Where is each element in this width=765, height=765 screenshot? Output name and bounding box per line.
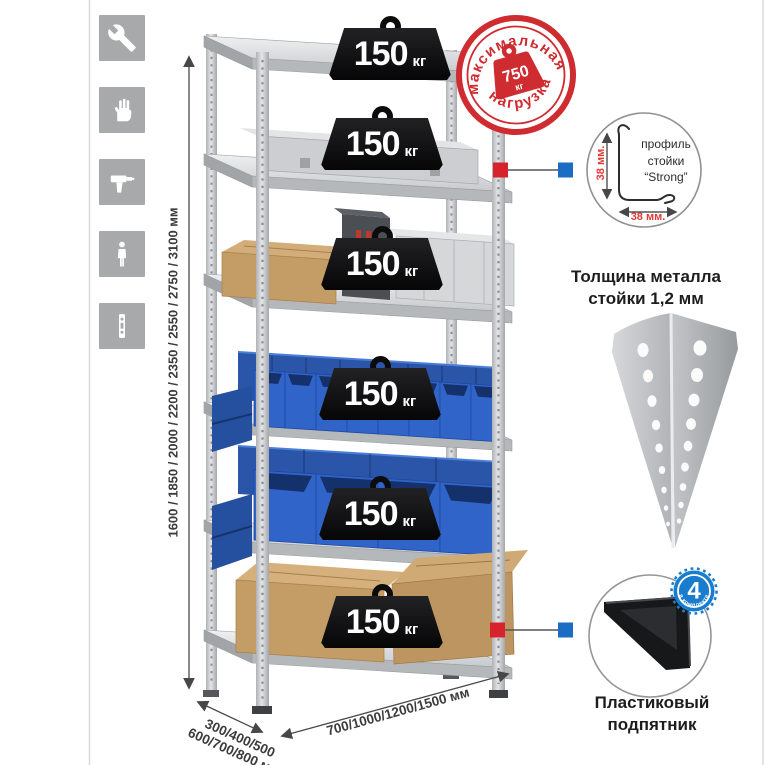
height-dimension-label: 1600 / 1850 / 2000 / 2200 / 2350 / 2550 … — [166, 53, 181, 693]
red-marker — [493, 163, 508, 178]
red-marker — [490, 623, 505, 638]
profile-dim-vertical: 38 мм. — [595, 133, 607, 193]
shelf-load-weight: 150кг — [318, 476, 442, 540]
shelf-load-weight: 150кг — [320, 584, 444, 648]
max-load-stamp: максимальная нагрузка 750 кг — [445, 4, 586, 145]
shelf-load-unit: кг — [404, 144, 418, 159]
qty-badge: 4 в комплекте — [672, 569, 717, 614]
caption-line2: стойки 1,2 мм — [546, 288, 746, 310]
connector-profile — [493, 163, 573, 178]
shelf-load-weight: 150кг — [328, 16, 452, 80]
shelf-load-value: 150 — [346, 605, 400, 639]
shelf-load-unit: кг — [402, 394, 416, 409]
shelf-load-value: 150 — [346, 127, 400, 161]
profile-label-line2: стойки — [630, 153, 702, 170]
shelf-load-unit: кг — [404, 264, 418, 279]
shelf-load-value: 150 — [346, 247, 400, 281]
caption-line2: подпятник — [552, 714, 752, 736]
shelf-load-weight: 150кг — [318, 356, 442, 420]
badge-value: 4 — [687, 578, 701, 605]
profile-label-line3: “Strong” — [630, 169, 702, 186]
plastic-foot-caption: Пластиковый подпятник — [552, 692, 752, 736]
shelf-load-unit: кг — [402, 514, 416, 529]
shelf-load-value: 150 — [354, 37, 408, 71]
shelf-load-value: 150 — [344, 377, 398, 411]
blue-marker — [558, 163, 573, 178]
metal-thickness-caption: Толщина металла стойки 1,2 мм — [546, 266, 746, 310]
profile-label-line1: профиль — [630, 136, 702, 153]
shelf-load-weight: 150кг — [320, 226, 444, 290]
caption-line1: Толщина металла — [546, 266, 746, 288]
connector-foot — [490, 623, 573, 638]
shelf-load-unit: кг — [412, 54, 426, 69]
shelf-load-unit: кг — [404, 622, 418, 637]
profile-dim-horizontal: 38 мм. — [608, 211, 688, 223]
profile-label: профиль стойки “Strong” — [630, 136, 702, 186]
shelf-load-value: 150 — [344, 497, 398, 531]
angle-profile-image — [612, 313, 738, 548]
caption-line1: Пластиковый — [552, 692, 752, 714]
blue-marker — [558, 623, 573, 638]
foot-detail-circle: 4 в комплекте — [589, 569, 717, 698]
shelf-load-weight: 150кг — [320, 106, 444, 170]
infographic-page: максимальная нагрузка 750 кг — [0, 0, 765, 765]
